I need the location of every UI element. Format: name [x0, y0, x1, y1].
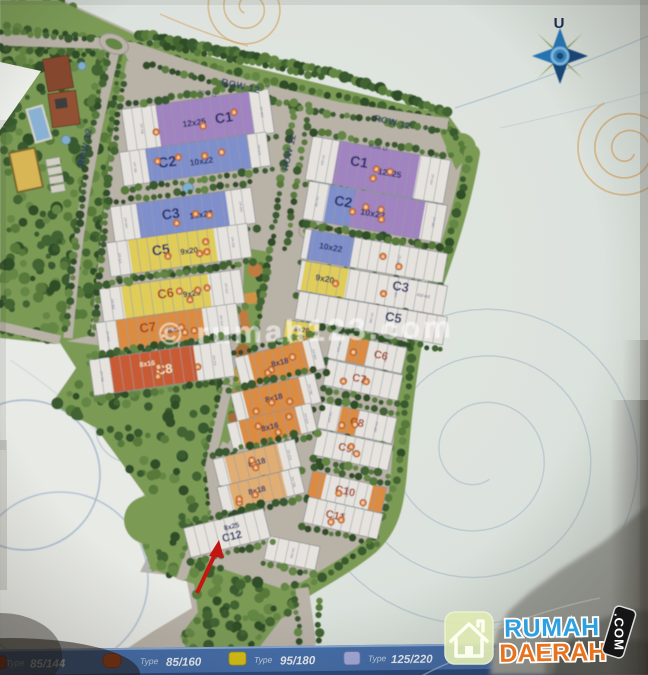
svg-text:.COM: .COM: [612, 613, 627, 651]
svg-text:DAERAH: DAERAH: [499, 638, 606, 668]
